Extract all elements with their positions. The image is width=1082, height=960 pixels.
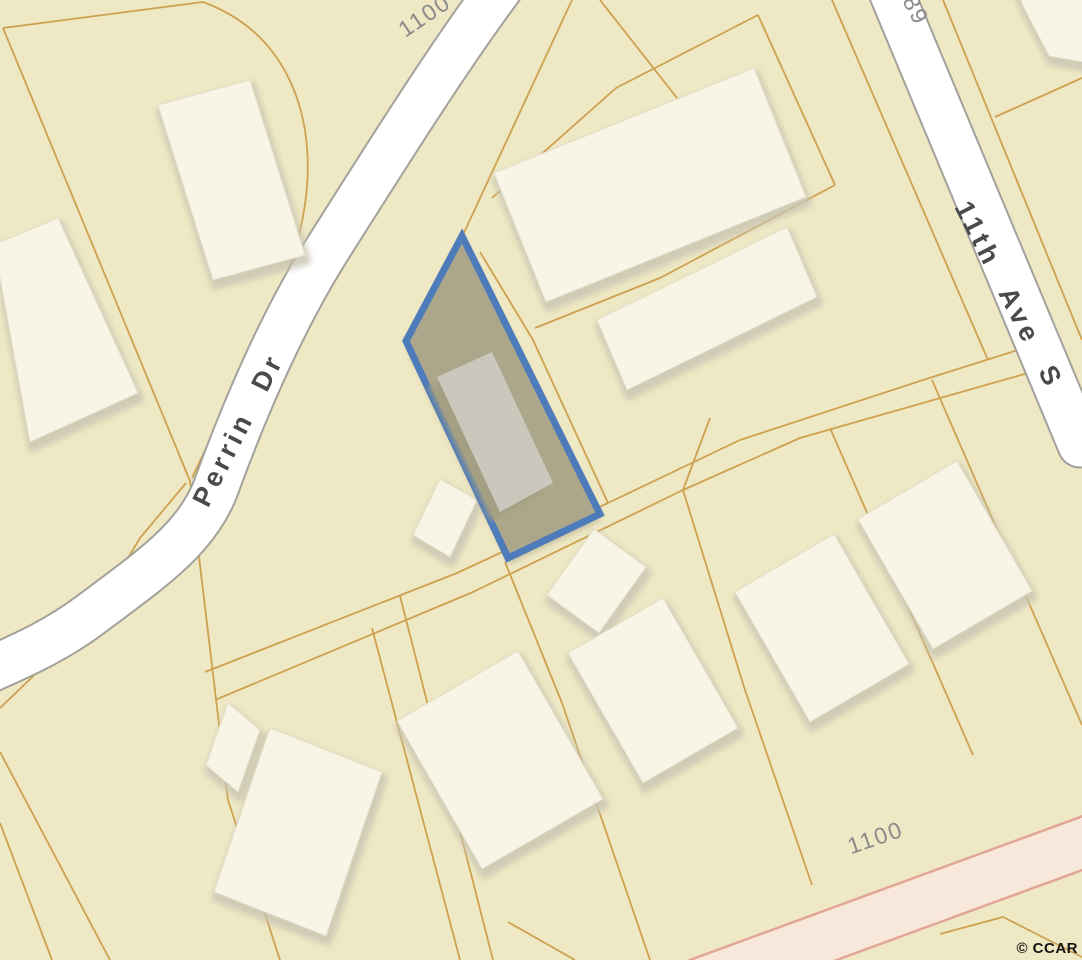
- parcel-map: Perrin Dr 11th Ave S 1100 89 1100 © CCAR: [0, 0, 1082, 960]
- ccar-attribution: © CCAR: [1016, 940, 1078, 957]
